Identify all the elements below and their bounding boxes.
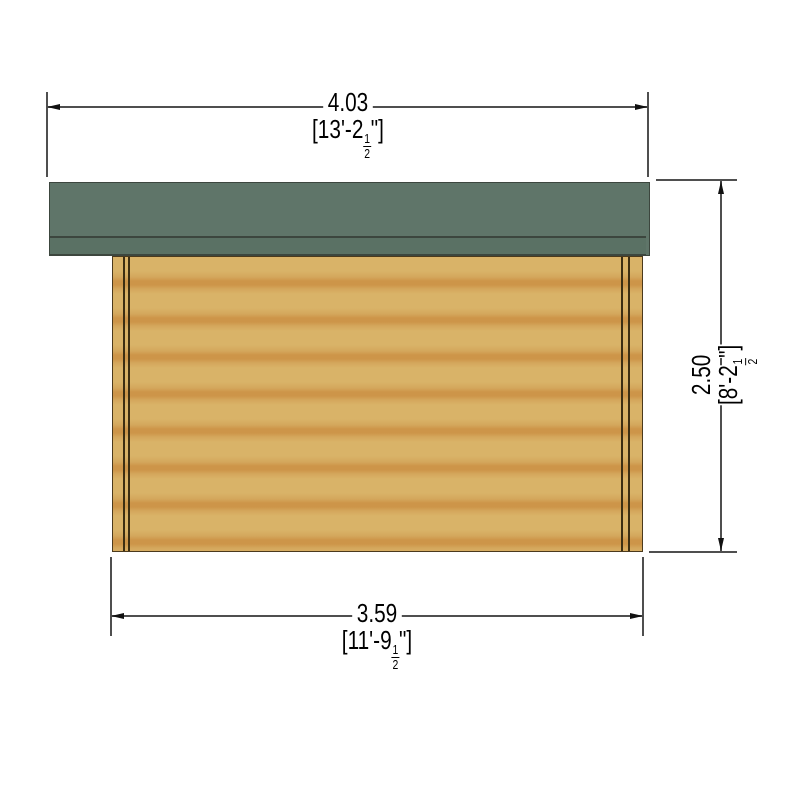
corner-joint-line (128, 257, 130, 551)
extension-line (656, 179, 737, 181)
fraction: 12 (363, 132, 370, 160)
dimension-imperial-value: [8'-212"] (715, 315, 760, 435)
dimension-metric-value: 4.03 (323, 89, 373, 116)
roof (49, 182, 650, 256)
corner-joint-line (621, 257, 623, 551)
fraction: 12 (732, 358, 760, 365)
dimension-label-height: 2.50 [8'-212"] (688, 315, 760, 435)
arrowhead-right-icon (630, 613, 643, 619)
dimension-imperial-value: [11'-912"] (321, 627, 433, 672)
extension-line (649, 551, 737, 553)
arrowhead-left-icon (111, 613, 124, 619)
fraction: 12 (392, 643, 399, 671)
dimension-imperial-value: [13'-212"] (292, 116, 404, 161)
arrowhead-down-icon (718, 538, 724, 551)
arrowhead-up-icon (718, 181, 724, 194)
log-wall (112, 256, 643, 552)
dimension-metric-value: 2.50 (688, 350, 715, 400)
roof-fascia (50, 236, 646, 255)
elevation-drawing: 4.03 [13'-212"] 3.59 [11'-912"] 2.50 [8'… (0, 0, 800, 800)
extension-line (642, 557, 644, 636)
corner-joint-line (123, 257, 125, 551)
corner-joint-line (628, 257, 630, 551)
arrowhead-left-icon (47, 104, 60, 110)
dimension-metric-value: 3.59 (352, 600, 402, 627)
extension-line (110, 557, 112, 636)
dimension-label-wall-width: 3.59 [11'-912"] (321, 600, 433, 672)
dimension-label-roof-width: 4.03 [13'-212"] (292, 89, 404, 161)
arrowhead-right-icon (635, 104, 648, 110)
